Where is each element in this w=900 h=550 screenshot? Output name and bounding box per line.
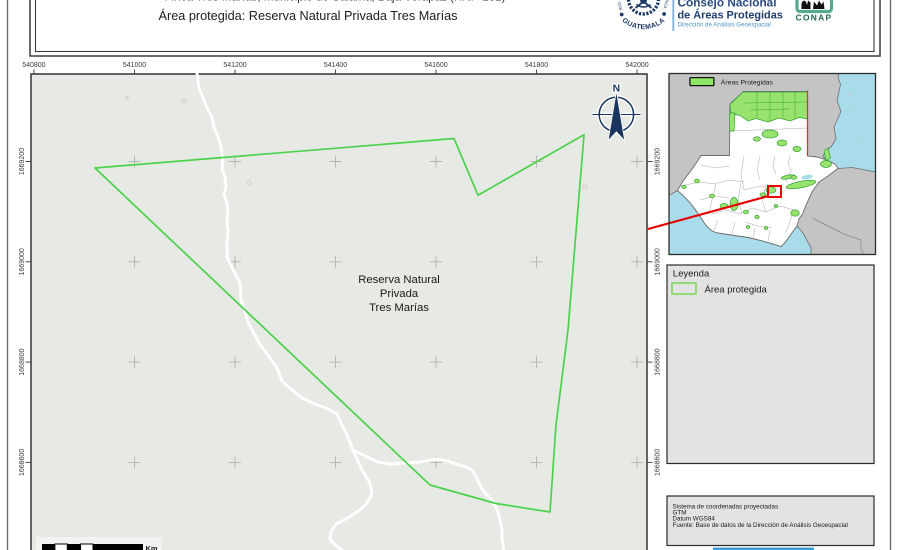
svg-text:Dirección de Análisis Geoespac: Dirección de Análisis Geoespacial [678, 22, 771, 29]
svg-text:Áreas Protegidas: Áreas Protegidas [721, 77, 774, 86]
svg-text:Consejo Nacional: Consejo Nacional [678, 0, 777, 10]
svg-text:1669200: 1669200 [655, 148, 662, 175]
svg-text:de Áreas Protegidas: de Áreas Protegidas [678, 9, 783, 22]
svg-text:Leyenda: Leyenda [673, 269, 710, 280]
svg-text:Reserva Natural: Reserva Natural [358, 274, 440, 286]
svg-text:Área protegida: Reserva Natura: Área protegida: Reserva Natural Privada … [159, 8, 458, 23]
svg-text:541000: 541000 [123, 62, 146, 69]
svg-text:Sistema de coordenadas proyect: Sistema de coordenadas proyectadas [673, 504, 779, 511]
svg-text:1668800: 1668800 [655, 348, 662, 375]
svg-text:Privada: Privada [380, 288, 419, 300]
svg-text:540800: 540800 [22, 62, 45, 69]
svg-text:1669000: 1669000 [19, 248, 26, 275]
svg-text:541600: 541600 [424, 62, 447, 69]
svg-text:1669200: 1669200 [19, 148, 26, 175]
svg-text:1668600: 1668600 [655, 449, 662, 476]
svg-text:Km: Km [146, 544, 158, 550]
svg-text:541200: 541200 [223, 62, 246, 69]
svg-text:541800: 541800 [525, 62, 548, 69]
svg-text:CONAP: CONAP [796, 12, 833, 22]
svg-text:542000: 542000 [625, 62, 648, 69]
svg-text:1669000: 1669000 [655, 248, 662, 275]
svg-text:Fuente: Base de datos de la Di: Fuente: Base de datos de la Dirección de… [673, 522, 848, 529]
svg-text:Finca Tres Marías, municipio d: Finca Tres Marías, municipio de Salamá, … [165, 0, 506, 3]
svg-text:541400: 541400 [324, 62, 347, 69]
svg-text:1668600: 1668600 [19, 449, 26, 476]
svg-text:Tres Marías: Tres Marías [369, 302, 429, 314]
svg-text:Área protegida: Área protegida [705, 285, 768, 296]
svg-text:N: N [613, 84, 621, 95]
svg-text:1668800: 1668800 [19, 348, 26, 375]
